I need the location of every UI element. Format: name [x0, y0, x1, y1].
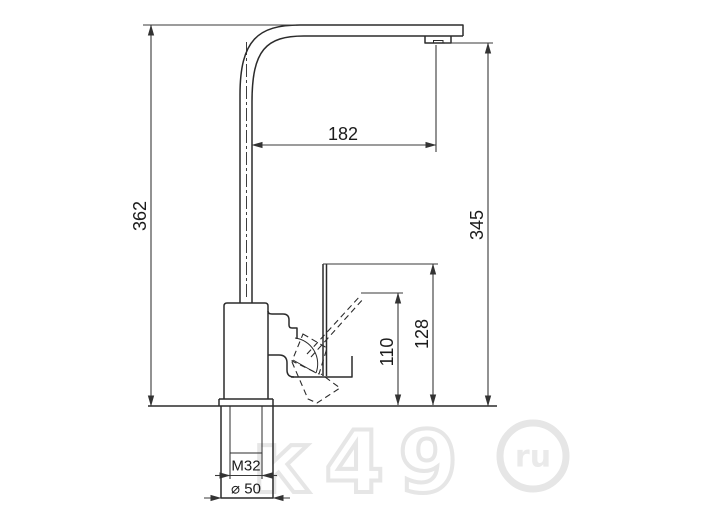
body-upper-step [268, 311, 297, 339]
housing-back-edge [323, 264, 327, 376]
spout-outlet [425, 36, 451, 43]
watermark: к49 ru [252, 413, 566, 513]
base-flange [219, 399, 273, 406]
dim-label-total-height: 362 [130, 201, 150, 231]
body-lower-step [268, 355, 294, 377]
spout-outer-edge [240, 25, 463, 303]
watermark-badge-text: ru [515, 440, 551, 475]
lever-down-dashed [292, 362, 340, 403]
dim-label-lever-height: 110 [377, 338, 397, 367]
spout-underside [252, 36, 463, 303]
dim-label-cartridge-height: 128 [412, 319, 432, 349]
dim-label-base-diameter: ⌀ 50 [231, 481, 261, 498]
dim-label-spout-reach: 182 [328, 124, 358, 144]
body-block [224, 303, 268, 399]
lever-arm-dashed [307, 295, 364, 357]
faucet-dimension-drawing: к49 ru [0, 0, 702, 523]
lever-grip-dashed [292, 334, 327, 374]
dim-label-thread-size: M32 [231, 458, 260, 475]
dim-label-spout-height: 345 [467, 210, 487, 240]
